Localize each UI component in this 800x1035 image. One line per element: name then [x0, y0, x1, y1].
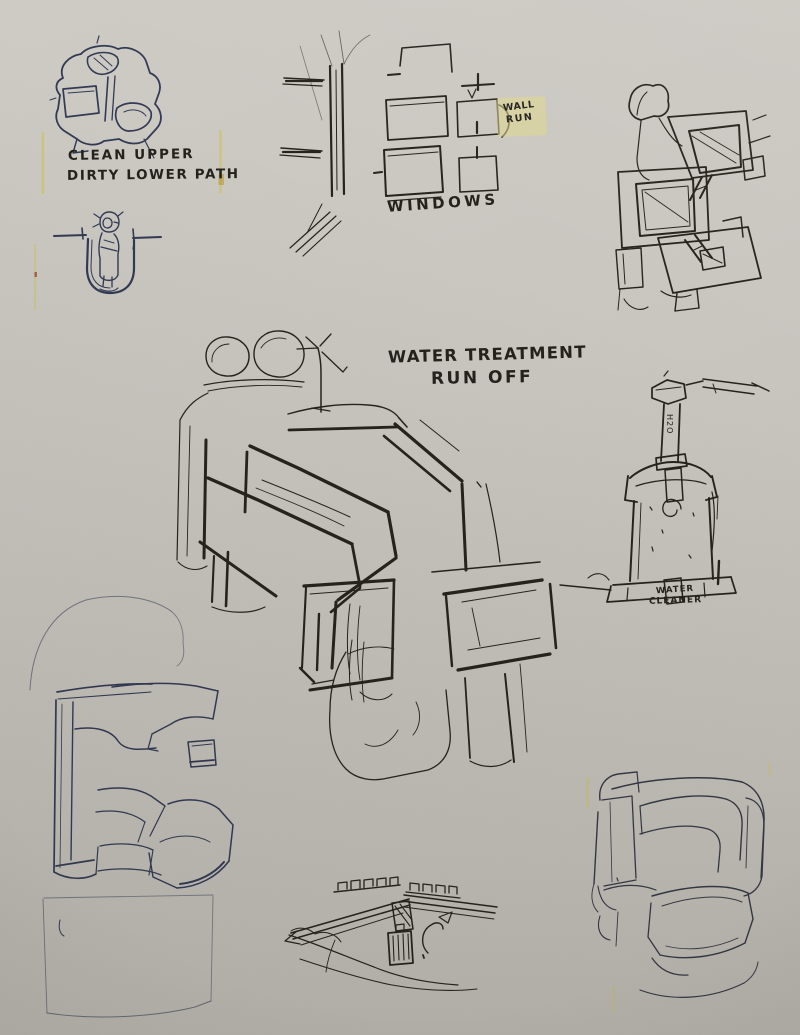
label-dirty-lower-path: DIRTY LOWER PATH: [67, 166, 240, 184]
label-clean-upper: CLEAN UPPER: [68, 146, 195, 164]
label-h2o-pipe: H2O: [665, 414, 674, 434]
sketchbook-page: CLEAN UPPER DIRTY LOWER PATH WINDOWS WAL…: [0, 0, 800, 1035]
label-water-cleaner-line2: CLEANER: [649, 595, 702, 607]
label-run-off: RUN OFF: [431, 367, 534, 389]
